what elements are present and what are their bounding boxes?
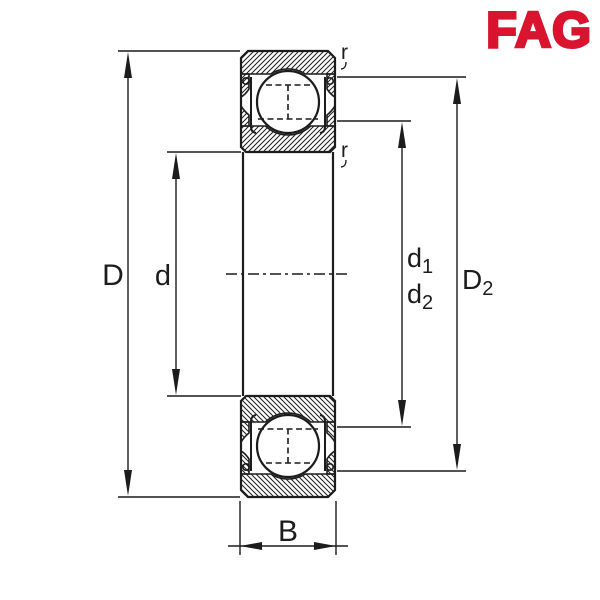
dim-label-d1: d1 — [407, 243, 433, 278]
dim-label-d2-base: d — [407, 279, 422, 309]
dim-label-d: d — [155, 260, 171, 292]
dim-label-D2-base: D — [462, 264, 482, 295]
chamfer-label-r-inner: r — [341, 139, 348, 162]
bearing-drawing: D d d1 d2 D2 B r r FAG — [0, 0, 600, 600]
bearing-section-bottom — [241, 396, 335, 497]
arrowhead-B-right — [314, 542, 336, 550]
dim-label-D2: D2 — [462, 264, 493, 300]
dim-label-B: B — [278, 515, 298, 548]
arrowhead-d1-down — [398, 400, 406, 426]
fag-logo: FAG — [486, 2, 592, 58]
arrowhead-d1-up — [398, 122, 406, 148]
arrowhead-D2-up — [453, 78, 461, 104]
arrowhead-D-down — [124, 470, 132, 496]
dim-label-D: D — [102, 259, 124, 292]
bearing-drawing-page: D d d1 d2 D2 B r r FAG — [0, 0, 600, 600]
arrowhead-D2-down — [453, 444, 461, 470]
dim-label-d1-base: d — [407, 243, 422, 273]
dim-label-d2-sub: 2 — [422, 292, 433, 314]
arrowhead-d-up — [172, 153, 180, 179]
arrowhead-D-up — [124, 52, 132, 78]
arrowhead-d-down — [172, 369, 180, 395]
dim-label-d2: d2 — [407, 279, 433, 314]
arrowhead-B-left — [240, 542, 262, 550]
dim-label-D2-sub: 2 — [482, 278, 493, 300]
bearing-section-top — [241, 51, 335, 152]
chamfer-label-r-outer: r — [341, 41, 348, 64]
dim-label-d1-sub: 1 — [422, 256, 433, 278]
